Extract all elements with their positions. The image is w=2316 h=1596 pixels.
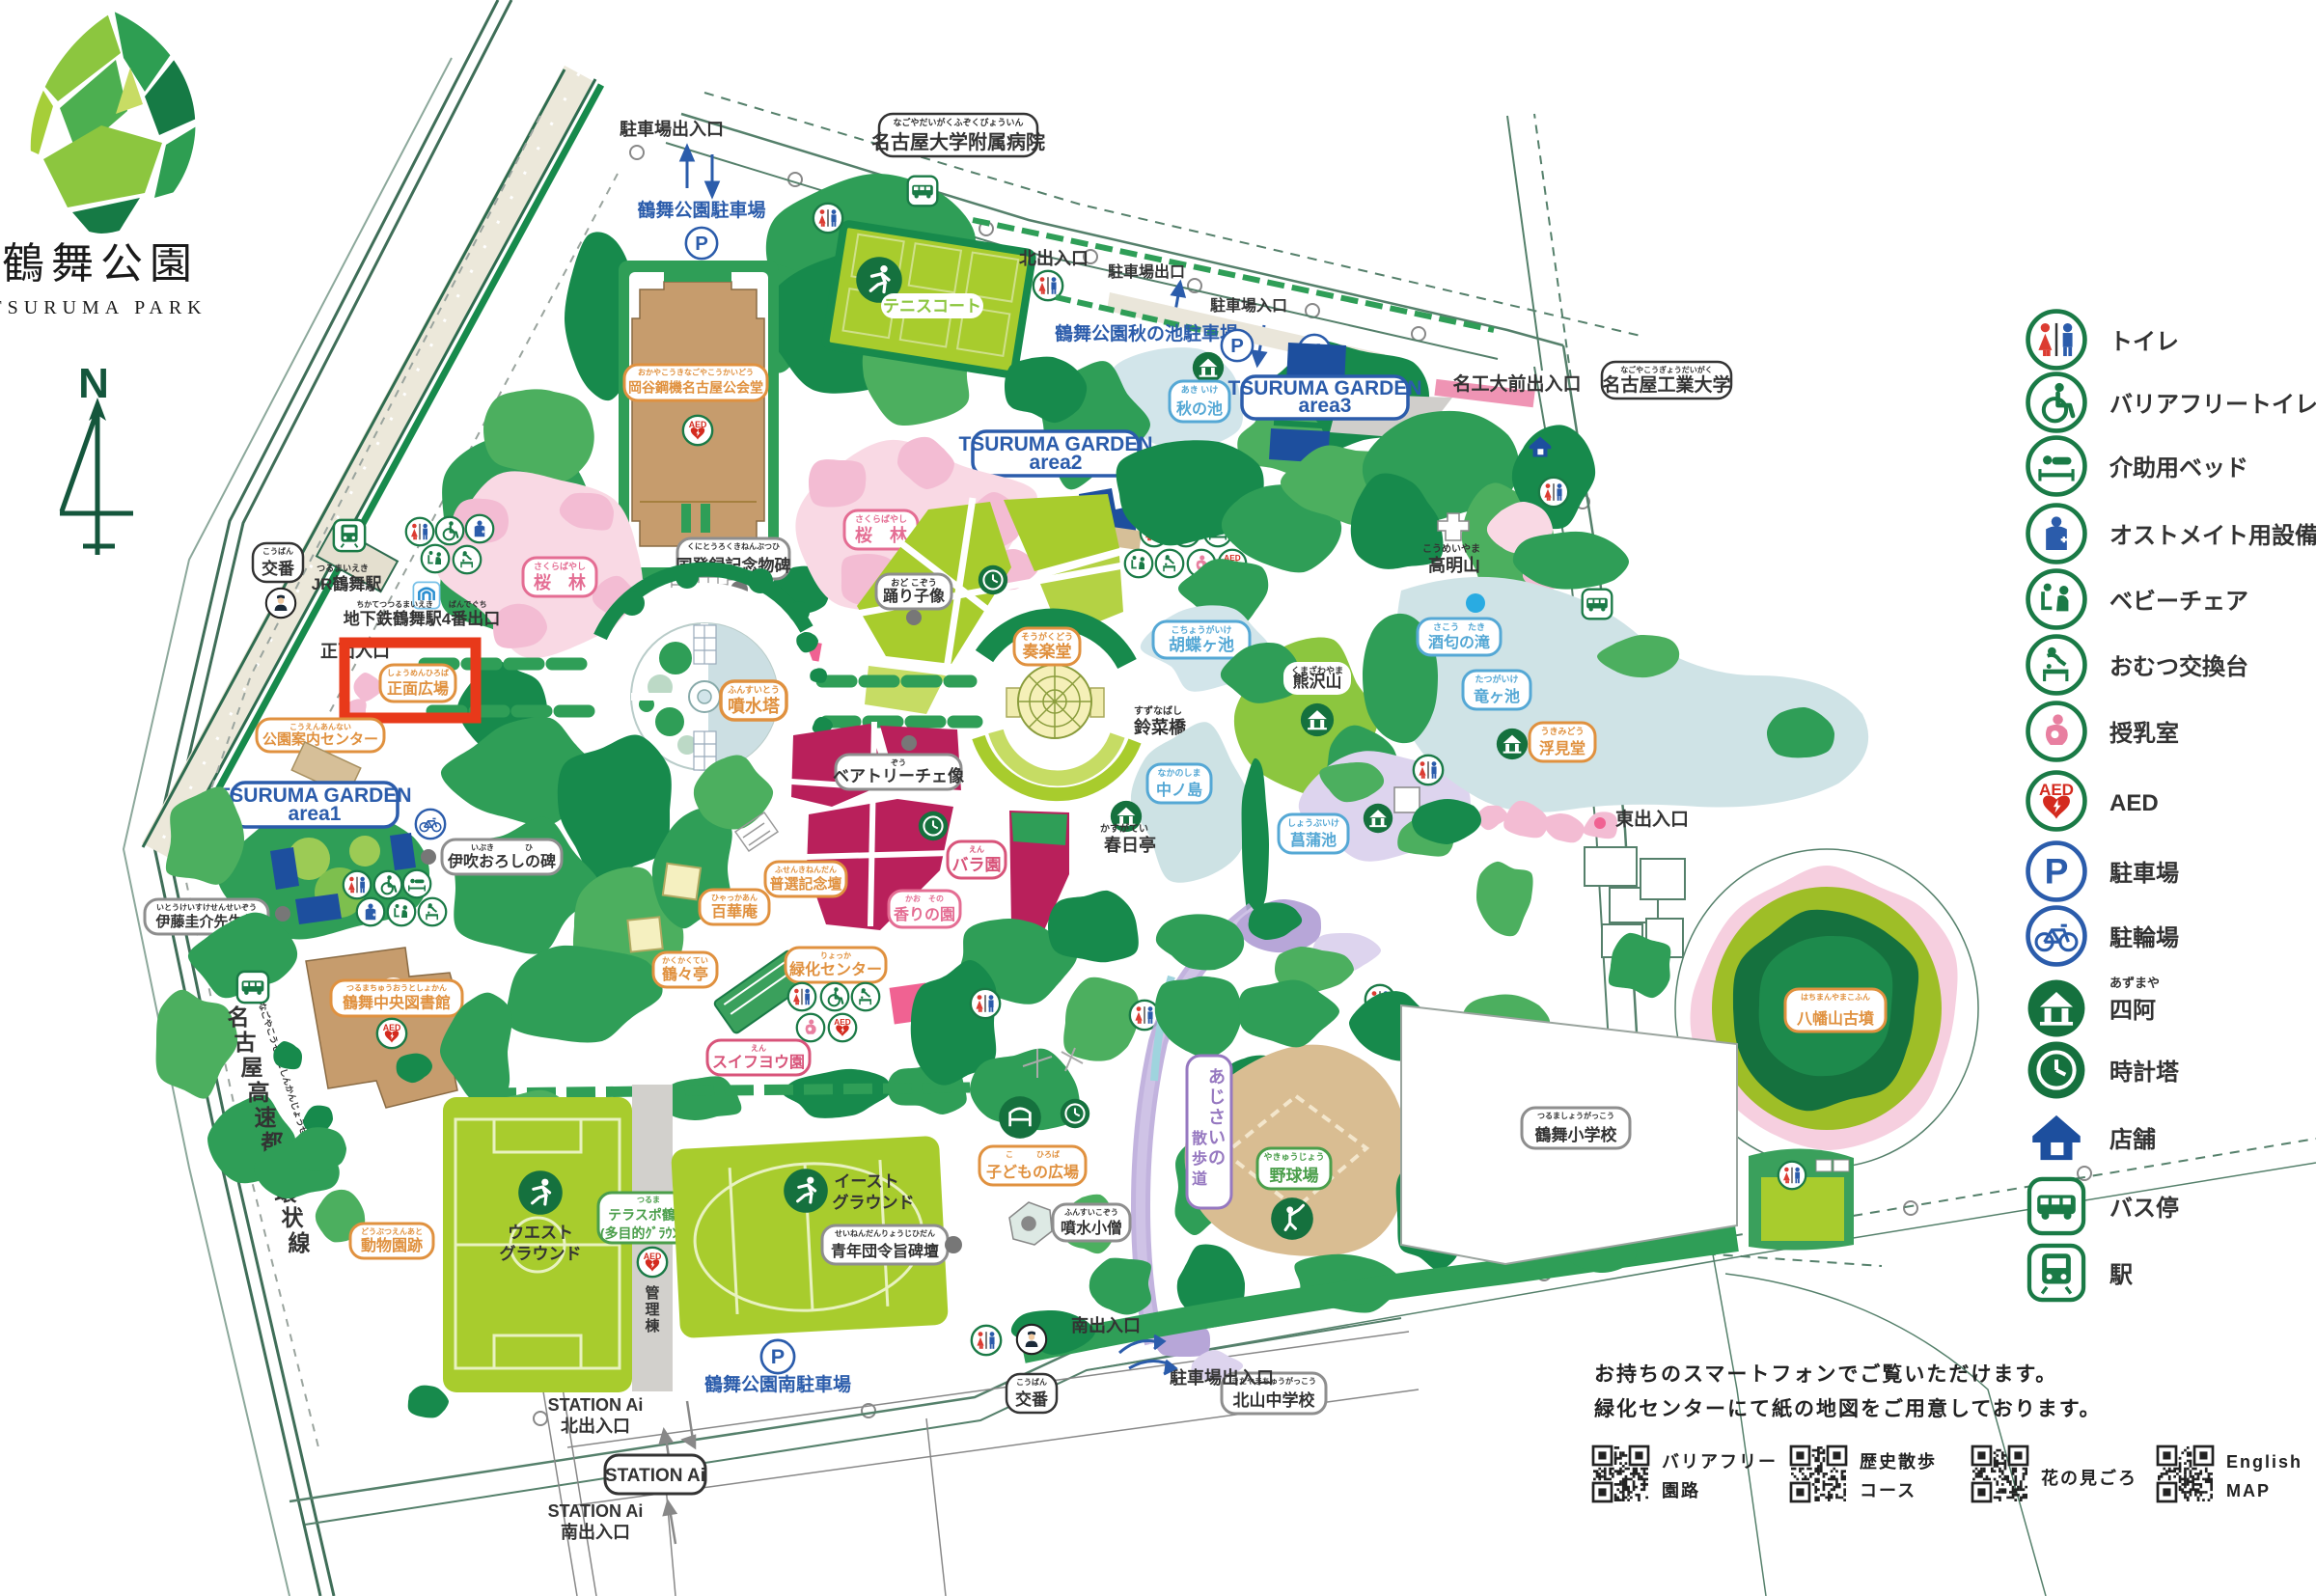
svg-text:東出入口: 東出入口 bbox=[1615, 808, 1689, 830]
svg-text:English: English bbox=[2226, 1452, 2302, 1472]
svg-text:北山中学校: 北山中学校 bbox=[1233, 1390, 1316, 1410]
svg-text:JR鶴舞駅: JR鶴舞駅 bbox=[312, 574, 383, 593]
svg-text:グラウンド: グラウンド bbox=[833, 1193, 915, 1212]
svg-text:スイフヨウ園: スイフヨウ園 bbox=[712, 1054, 805, 1071]
svg-text:理: 理 bbox=[645, 1302, 659, 1318]
svg-text:名古屋工業大学: 名古屋工業大学 bbox=[1602, 373, 1730, 396]
svg-text:せいねんだんりょうじひだん: せいねんだんりょうじひだん bbox=[835, 1229, 935, 1238]
svg-text:道: 道 bbox=[1192, 1169, 1207, 1188]
svg-text:菖蒲池: 菖蒲池 bbox=[1290, 831, 1337, 849]
svg-text:動物園跡: 動物園跡 bbox=[361, 1236, 423, 1254]
svg-text:STATION Ai: STATION Ai bbox=[548, 1395, 644, 1415]
svg-text:鶴舞公園秋の池駐車場: 鶴舞公園秋の池駐車場 bbox=[1055, 322, 1238, 344]
svg-text:鶴舞公園駐車場: 鶴舞公園駐車場 bbox=[637, 199, 765, 221]
svg-text:伊吹おろしの碑: 伊吹おろしの碑 bbox=[447, 852, 556, 870]
svg-text:普選記念壇: 普選記念壇 bbox=[769, 875, 841, 893]
svg-text:しょうぶいけ: しょうぶいけ bbox=[1287, 818, 1339, 828]
svg-text:つるま: つるま bbox=[637, 1196, 660, 1204]
svg-text:駐車場出口: 駐車場出口 bbox=[1108, 262, 1185, 281]
svg-text:香りの園: 香りの園 bbox=[893, 906, 955, 923]
svg-text:かお その: かお その bbox=[905, 894, 944, 903]
svg-text:トイレ: トイレ bbox=[2109, 329, 2179, 355]
svg-text:線: 線 bbox=[289, 1230, 311, 1255]
svg-text:秋の池: 秋の池 bbox=[1176, 399, 1223, 418]
svg-text:さくらばやし: さくらばやし bbox=[534, 561, 586, 571]
svg-text:状: 状 bbox=[282, 1205, 305, 1230]
svg-text:緑化センターにて紙の地図をご用意しております。: 緑化センターにて紙の地図をご用意しております。 bbox=[1594, 1397, 2102, 1420]
svg-text:ふせんきねんだん: ふせんきねんだん bbox=[775, 866, 837, 874]
svg-text:STATION Ai: STATION Ai bbox=[548, 1501, 644, 1521]
svg-text:ふんすいこぞう: ふんすいこぞう bbox=[1064, 1208, 1118, 1217]
svg-text:いとうけいすけせんせいぞう: いとうけいすけせんせいぞう bbox=[156, 903, 257, 912]
svg-text:えん: えん bbox=[751, 1044, 766, 1053]
svg-text:ぞう: ぞう bbox=[891, 758, 906, 767]
svg-text:正面広場: 正面広場 bbox=[387, 679, 449, 698]
svg-text:たつがいけ: たつがいけ bbox=[1475, 674, 1518, 684]
svg-text:地下鉄鶴舞駅4番出口: 地下鉄鶴舞駅4番出口 bbox=[344, 609, 500, 628]
svg-text:やきゅうじょう: やきゅうじょう bbox=[1263, 1152, 1324, 1162]
svg-text:竜ヶ池: 竜ヶ池 bbox=[1474, 687, 1520, 705]
svg-text:こうばん: こうばん bbox=[1016, 1377, 1047, 1387]
svg-text:管: 管 bbox=[645, 1284, 659, 1302]
svg-text:踊り子像: 踊り子像 bbox=[883, 587, 946, 605]
svg-text:かくかくてい: かくかくてい bbox=[662, 956, 708, 965]
svg-text:ひゃっかあん: ひゃっかあん bbox=[711, 894, 758, 902]
svg-text:青年団令旨碑壇: 青年団令旨碑壇 bbox=[831, 1242, 939, 1260]
svg-text:テニスコート: テニスコート bbox=[883, 297, 981, 316]
svg-text:コース: コース bbox=[1860, 1481, 1916, 1500]
svg-text:駐車場: 駐車場 bbox=[2109, 860, 2179, 887]
svg-text:授乳室: 授乳室 bbox=[2109, 720, 2179, 747]
svg-text:子どもの広場: 子どもの広場 bbox=[986, 1163, 1079, 1181]
svg-text:あずまや: あずまや bbox=[2109, 976, 2160, 990]
svg-text:時計塔: 時計塔 bbox=[2109, 1059, 2180, 1086]
svg-text:えん: えん bbox=[969, 845, 984, 854]
svg-text:バラ園: バラ園 bbox=[952, 856, 1002, 874]
svg-text:浮見堂: 浮見堂 bbox=[1539, 739, 1585, 757]
svg-text:駐車場出入口: 駐車場出入口 bbox=[1170, 1367, 1274, 1388]
svg-text:おむつ交換台: おむつ交換台 bbox=[2109, 653, 2248, 680]
svg-text:岡谷鋼機名古屋公会堂: 岡谷鋼機名古屋公会堂 bbox=[628, 380, 763, 396]
svg-text:ふんすいとう: ふんすいとう bbox=[728, 685, 780, 695]
svg-text:いぶき ひ: いぶき ひ bbox=[471, 843, 533, 852]
svg-text:こうえんあんない: こうえんあんない bbox=[289, 723, 351, 731]
svg-text:駅: 駅 bbox=[2109, 1262, 2133, 1288]
svg-text:こうばん: こうばん bbox=[262, 546, 293, 556]
svg-text:酒匂の滝: 酒匂の滝 bbox=[1428, 633, 1490, 651]
svg-text:N: N bbox=[78, 360, 109, 407]
svg-text:しょうめんひろば: しょうめんひろば bbox=[387, 668, 449, 677]
svg-text:屋: 屋 bbox=[241, 1055, 263, 1080]
svg-text:MAP: MAP bbox=[2226, 1481, 2271, 1500]
svg-text:バス停: バス停 bbox=[2109, 1195, 2179, 1222]
svg-text:AED: AED bbox=[2109, 790, 2159, 816]
svg-text:駐輪場: 駐輪場 bbox=[2109, 924, 2179, 951]
svg-text:ベアトリーチェ像: ベアトリーチェ像 bbox=[833, 767, 965, 785]
svg-text:鶴舞公園南駐車場: 鶴舞公園南駐車場 bbox=[704, 1373, 851, 1395]
svg-text:歴史散歩: 歴史散歩 bbox=[1860, 1451, 1937, 1472]
svg-text:花の見ごろ: 花の見ごろ bbox=[2041, 1468, 2137, 1488]
svg-text:グラウンド: グラウンド bbox=[500, 1244, 582, 1263]
svg-text:あ: あ bbox=[1208, 1067, 1226, 1087]
svg-text:歩: 歩 bbox=[1192, 1149, 1207, 1168]
svg-text:お持ちのスマートフォンでご覧いただけます。: お持ちのスマートフォンでご覧いただけます。 bbox=[1594, 1362, 2057, 1386]
svg-text:駐車場出入口: 駐車場出入口 bbox=[620, 119, 724, 139]
svg-text:名工大前出入口: 名工大前出入口 bbox=[1452, 372, 1581, 395]
svg-text:STATION Ai: STATION Ai bbox=[605, 1466, 705, 1486]
svg-text:交番: 交番 bbox=[1015, 1390, 1049, 1409]
svg-text:鈴菜橋: 鈴菜橋 bbox=[1134, 717, 1187, 737]
svg-text:くにとうろくきねんぶつひ: くにとうろくきねんぶつひ bbox=[687, 542, 780, 551]
svg-text:あき いけ: あき いけ bbox=[1181, 385, 1219, 395]
svg-text:散: 散 bbox=[1192, 1129, 1208, 1147]
svg-text:交番: 交番 bbox=[262, 559, 295, 578]
svg-text:さこう たき: さこう たき bbox=[1433, 622, 1485, 632]
svg-text:駐車場入口: 駐車場入口 bbox=[1210, 296, 1287, 315]
svg-text:名: 名 bbox=[228, 1004, 250, 1030]
svg-text:高明山: 高明山 bbox=[1428, 555, 1480, 575]
svg-text:店舗: 店舗 bbox=[2109, 1127, 2156, 1153]
svg-text:おど こぞう: おど こぞう bbox=[891, 577, 937, 588]
svg-text:バリアフリー: バリアフリー bbox=[1662, 1452, 1778, 1472]
svg-text:area1: area1 bbox=[289, 803, 342, 825]
svg-text:桜 林: 桜 林 bbox=[534, 572, 586, 592]
svg-text:バリアフリートイレ: バリアフリートイレ bbox=[2109, 392, 2316, 418]
svg-text:ちかてつつるまいえき ばんでぐち: ちかてつつるまいえき ばんでぐち bbox=[356, 599, 486, 609]
svg-text:ウエスト: ウエスト bbox=[508, 1224, 573, 1242]
svg-text:鶴舞小学校: 鶴舞小学校 bbox=[1535, 1125, 1618, 1144]
svg-text:オストメイト用設備: オストメイト用設備 bbox=[2109, 522, 2316, 549]
svg-text:北出入口: 北出入口 bbox=[1019, 248, 1089, 268]
svg-text:つるましょうがっこう: つるましょうがっこう bbox=[1537, 1111, 1614, 1120]
svg-text:りょっか: りょっか bbox=[820, 951, 851, 960]
svg-text:春日亭: 春日亭 bbox=[1104, 835, 1156, 855]
svg-text:鶴々亭: 鶴々亭 bbox=[662, 965, 708, 983]
svg-text:野球場: 野球場 bbox=[1270, 1167, 1319, 1185]
svg-text:古: 古 bbox=[234, 1030, 257, 1055]
svg-text:さ: さ bbox=[1208, 1108, 1226, 1127]
svg-text:TSURUMA PARK: TSURUMA PARK bbox=[0, 297, 207, 318]
svg-text:こ ひろば: こ ひろば bbox=[1006, 1149, 1060, 1159]
svg-text:なごやこうぎょうだいがく: なごやこうぎょうだいがく bbox=[1620, 365, 1713, 374]
svg-text:ベビーチェア: ベビーチェア bbox=[2109, 589, 2248, 615]
svg-text:鶴舞公園: 鶴舞公園 bbox=[2, 240, 199, 288]
svg-text:つるまちゅうおうとしょかん: つるまちゅうおうとしょかん bbox=[346, 984, 447, 993]
svg-text:なかのしま: なかのしま bbox=[1157, 768, 1200, 778]
svg-text:area2: area2 bbox=[1030, 452, 1083, 474]
svg-text:四阿: 四阿 bbox=[2109, 998, 2156, 1024]
svg-text:奏楽堂: 奏楽堂 bbox=[1022, 642, 1072, 661]
svg-text:かすがてい: かすがてい bbox=[1100, 822, 1148, 835]
svg-text:八幡山古墳: 八幡山古墳 bbox=[1796, 1009, 1874, 1028]
svg-text:area3: area3 bbox=[1299, 395, 1352, 417]
svg-text:百華庵: 百華庵 bbox=[711, 902, 758, 921]
svg-text:じ: じ bbox=[1208, 1087, 1226, 1107]
svg-text:棟: 棟 bbox=[645, 1317, 660, 1335]
svg-text:熊沢山: 熊沢山 bbox=[1293, 672, 1342, 691]
svg-text:緑化センター: 緑化センター bbox=[789, 960, 882, 978]
svg-text:鶴舞中央図書館: 鶴舞中央図書館 bbox=[343, 994, 451, 1012]
svg-text:胡蝶ヶ池: 胡蝶ヶ池 bbox=[1169, 635, 1234, 654]
svg-text:園路: 園路 bbox=[1662, 1480, 1700, 1500]
svg-text:おかやこうきなごやこうかいどう: おかやこうきなごやこうかいどう bbox=[638, 368, 754, 377]
svg-text:の: の bbox=[1208, 1148, 1226, 1168]
svg-text:介助用ベッド: 介助用ベッド bbox=[2109, 455, 2248, 482]
svg-text:こちょうがいけ: こちょうがいけ bbox=[1171, 624, 1231, 635]
svg-text:うきみどう: うきみどう bbox=[1540, 726, 1584, 736]
svg-text:つるまいえき: つるまいえき bbox=[317, 564, 369, 573]
svg-text:すずなばし: すずなばし bbox=[1134, 704, 1182, 717]
svg-text:南出入口: 南出入口 bbox=[1071, 1315, 1141, 1335]
svg-text:さくらばやし: さくらばやし bbox=[855, 513, 907, 524]
svg-text:南出入口: 南出入口 bbox=[561, 1522, 630, 1542]
svg-text:い: い bbox=[1208, 1128, 1226, 1147]
svg-text:なごやだいがくふぞくびょういん: なごやだいがくふぞくびょういん bbox=[893, 117, 1023, 127]
svg-text:速: 速 bbox=[255, 1105, 277, 1130]
svg-text:噴水塔: 噴水塔 bbox=[728, 696, 781, 716]
svg-text:噴水小僧: 噴水小僧 bbox=[1061, 1219, 1122, 1237]
svg-text:そうがくどう: そうがくどう bbox=[1021, 631, 1073, 642]
svg-text:どうぶつえんあと: どうぶつえんあと bbox=[361, 1226, 423, 1236]
svg-text:中ノ島: 中ノ島 bbox=[1156, 781, 1202, 799]
svg-text:はちまんやまこふん: はちまんやまこふん bbox=[1801, 992, 1870, 1002]
svg-text:イースト: イースト bbox=[834, 1172, 898, 1191]
svg-text:高: 高 bbox=[248, 1080, 270, 1105]
svg-text:公園案内センター: 公園案内センター bbox=[262, 730, 378, 748]
svg-text:名古屋大学附属病院: 名古屋大学附属病院 bbox=[871, 130, 1045, 153]
svg-text:こうめいやま: こうめいやま bbox=[1422, 543, 1480, 555]
svg-text:北出入口: 北出入口 bbox=[561, 1416, 630, 1436]
